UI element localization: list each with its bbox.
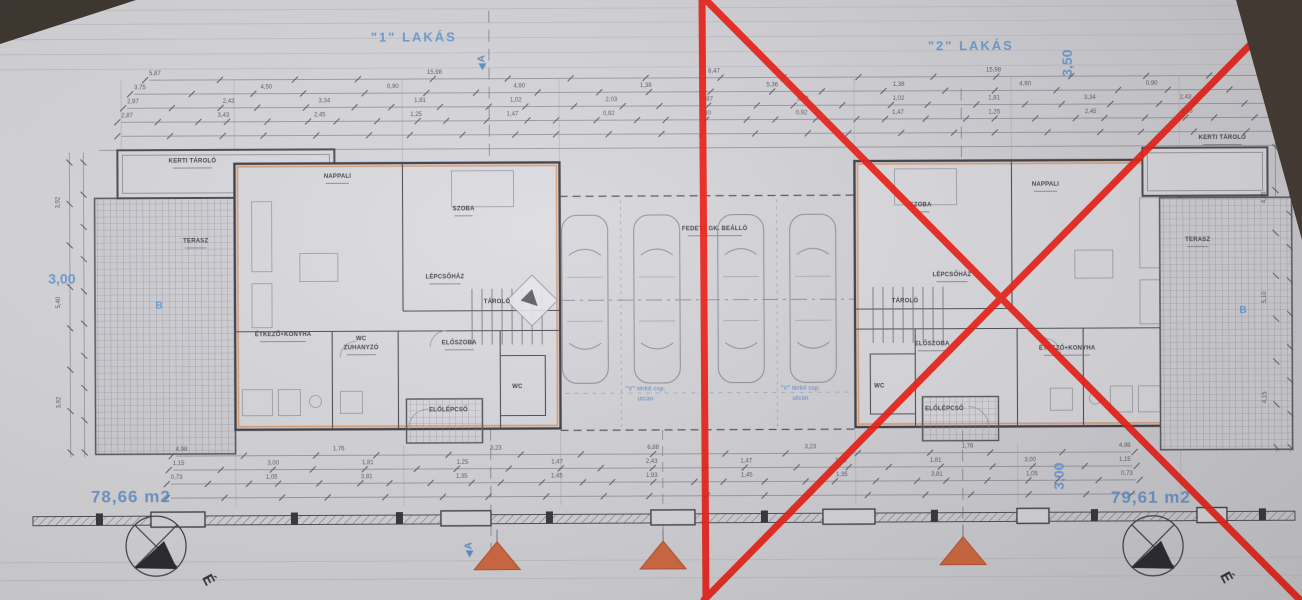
red-cross-overlay <box>0 0 1302 600</box>
floorplan-photo: "1" LAKÁS "2" LAKÁS 3,50 3,00 3,00 78,66… <box>0 0 1302 600</box>
red-vertical-line <box>702 0 706 600</box>
